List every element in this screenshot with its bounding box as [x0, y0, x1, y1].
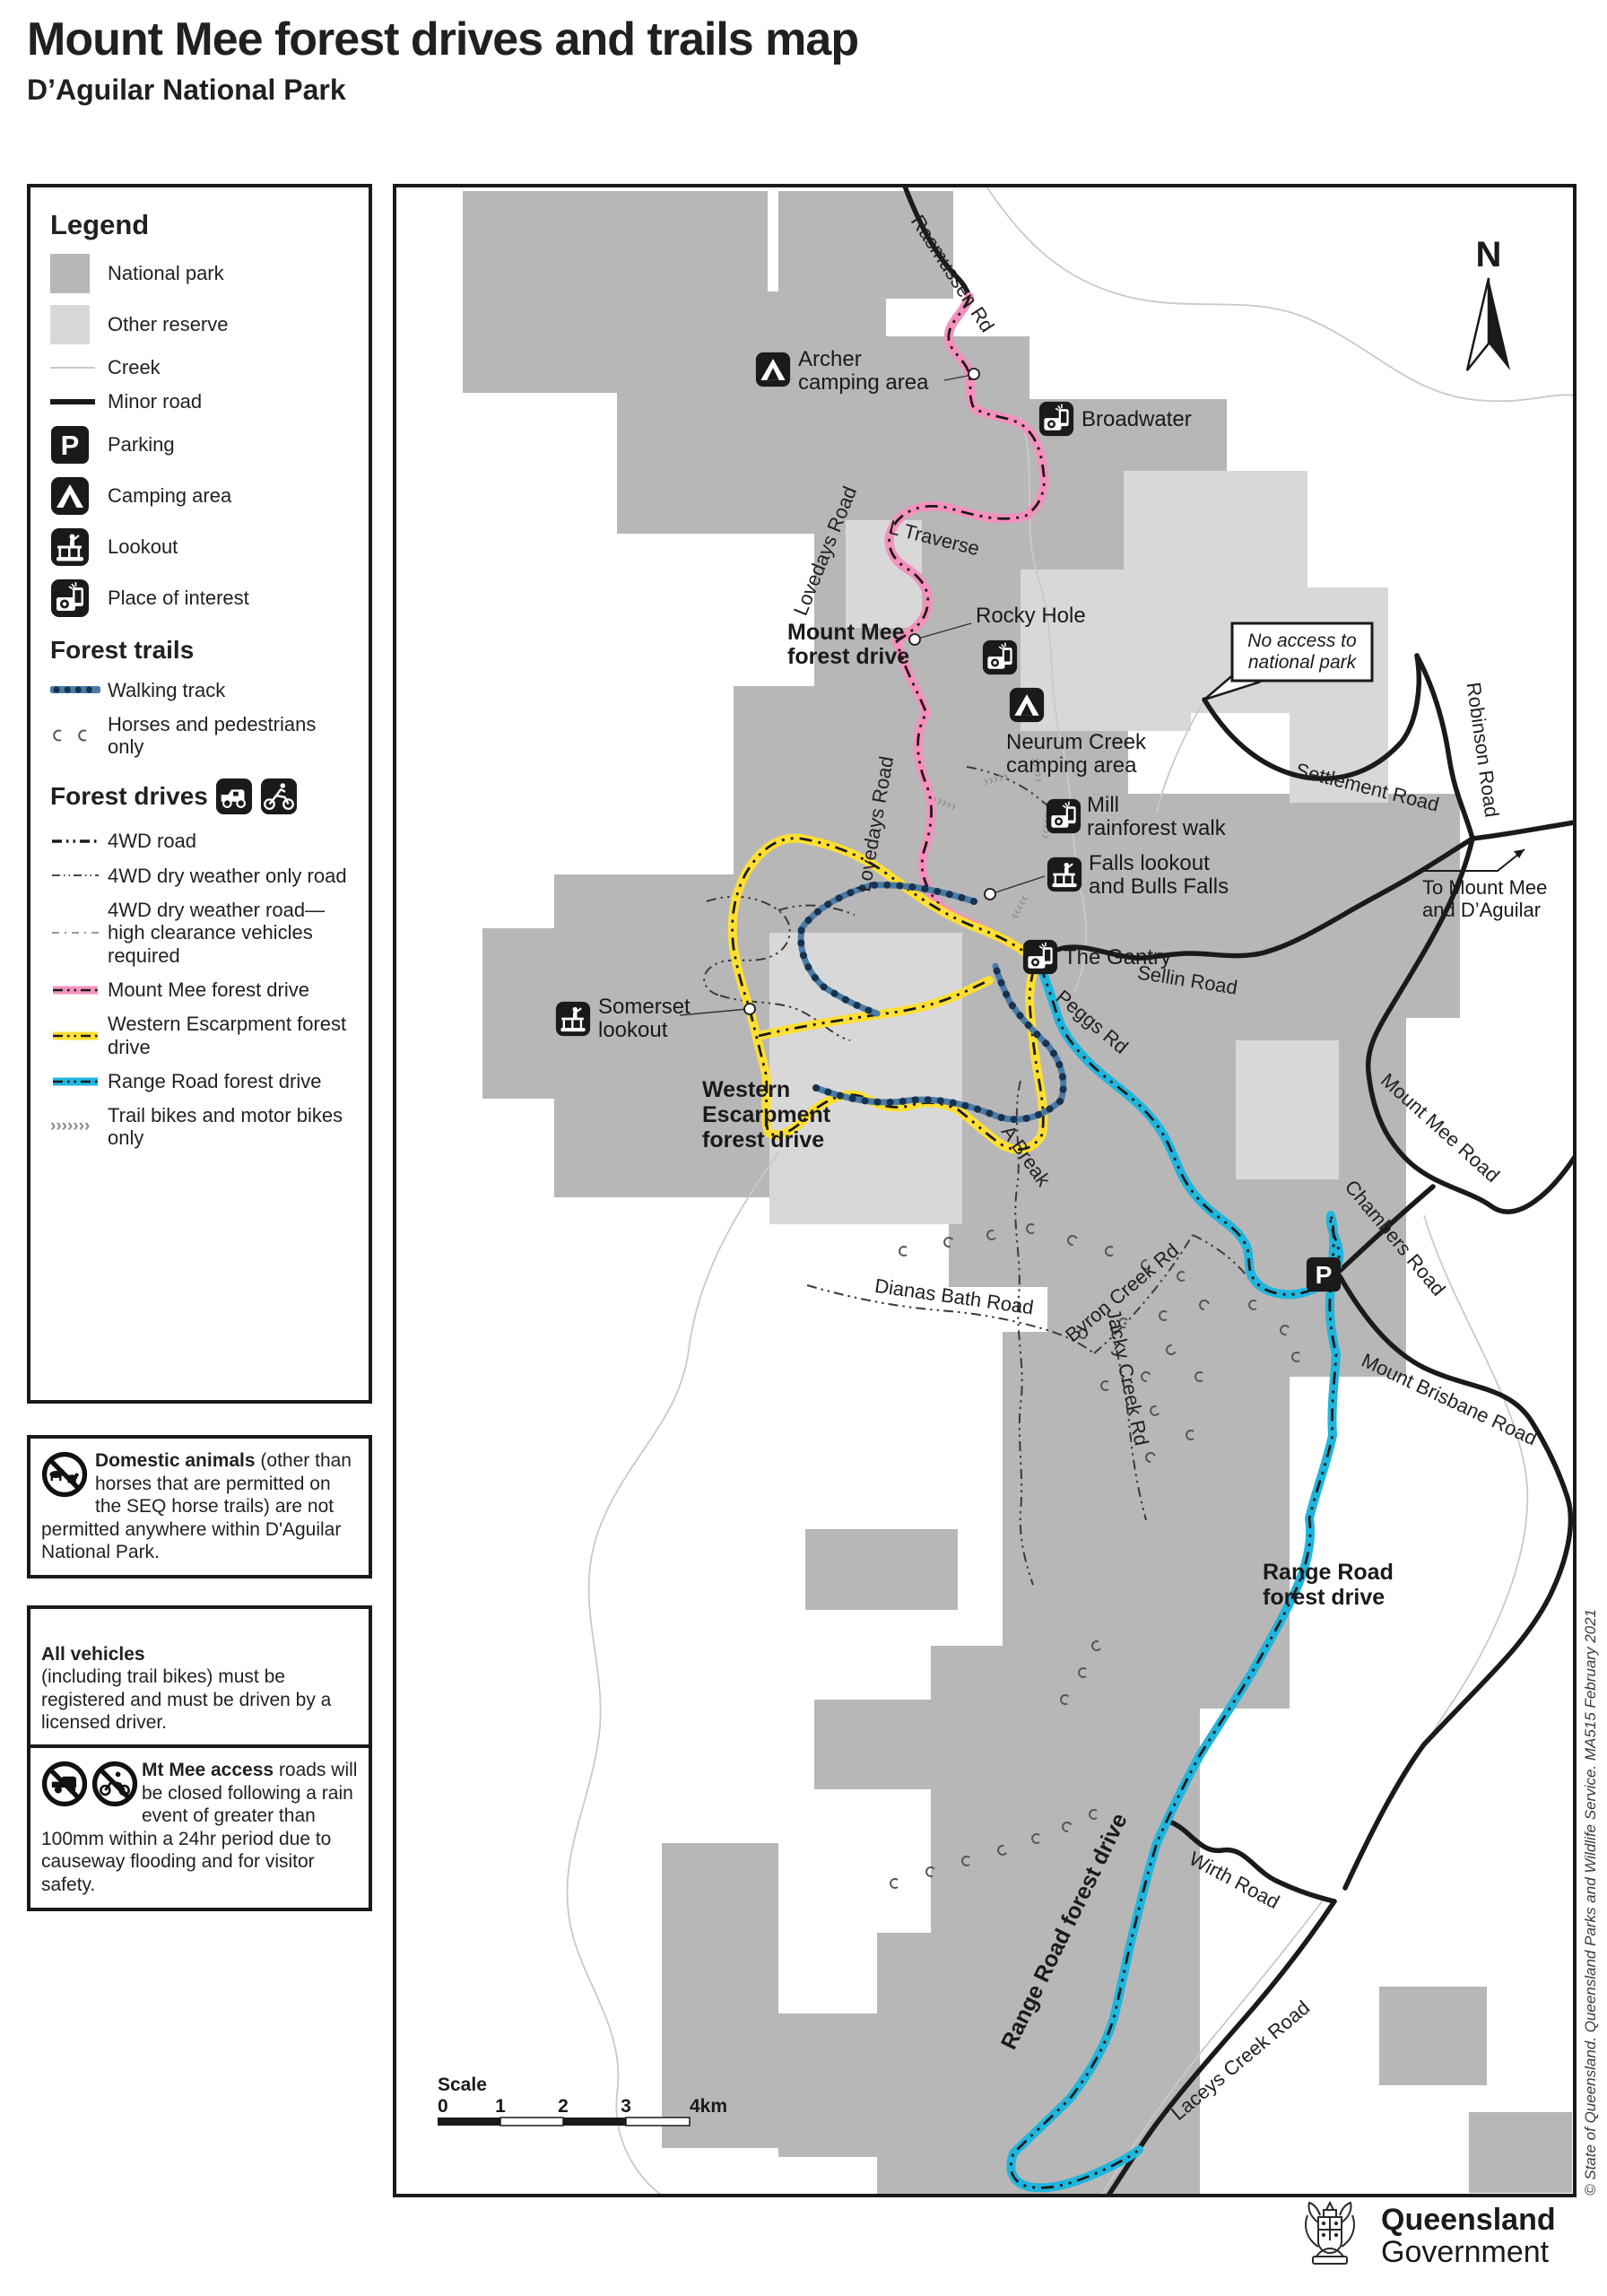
motorbike-icon — [260, 778, 298, 815]
place-of-interest-icon — [50, 578, 108, 618]
label-somerset-1: Somerset — [598, 995, 691, 1019]
lookout-icon — [50, 527, 108, 567]
no-access-line2: national park — [1248, 652, 1358, 673]
range-road-swatch — [50, 1075, 108, 1088]
gantry-poi-icon — [1023, 940, 1057, 974]
legend-item-range-road-drive: Range Road forest drive — [50, 1070, 356, 1092]
western-escarpment-swatch — [50, 1030, 108, 1042]
legend-heading: Legend — [50, 209, 356, 241]
no-domestic-animals-icon — [41, 1451, 88, 1498]
no-motorbike-icon — [91, 1761, 138, 1807]
scale-tick-3: 3 — [621, 2096, 631, 2117]
legend-item-national-park: National park — [50, 254, 356, 293]
gov-line2: Government — [1381, 2237, 1556, 2269]
no-4wd-icon — [41, 1761, 88, 1807]
label-rocky-hole: Rocky Hole — [976, 604, 1086, 628]
label-archer-2: camping area — [798, 370, 929, 395]
parking-icon — [50, 425, 108, 465]
legend-item-parking: Parking — [50, 425, 356, 465]
forest-drives-heading: Forest drives — [50, 778, 356, 815]
gov-line1: Queensland — [1381, 2205, 1556, 2237]
scale-heading: Scale — [438, 2074, 487, 2095]
label-falls-2: and Bulls Falls — [1089, 874, 1229, 899]
trail-bikes-swatch: ››››››› — [50, 1117, 108, 1136]
national-park-areas — [463, 191, 1572, 2196]
note-domestic-animals: Domestic animals (other than horses that… — [27, 1435, 372, 1578]
horses-pedestrians-swatch — [50, 729, 108, 742]
label-mill-2: rainforest walk — [1087, 816, 1227, 840]
label-gantry: The Gantry — [1064, 945, 1171, 970]
page-title: Mount Mee forest drives and trails map — [27, 13, 858, 66]
copyright-text: © State of Queensland. Queensland Parks … — [1582, 1119, 1600, 2196]
rocky-hole-poi-icon — [983, 640, 1017, 674]
label-archer-1: Archer — [798, 347, 862, 371]
label-wirth: Wirth Road — [1186, 1848, 1283, 1914]
legend-item-creek: Creek — [50, 356, 356, 378]
4wd-dry-high-swatch — [50, 926, 108, 939]
legend-item-trail-bikes: ››››››› Trail bikes and motor bikes only — [50, 1104, 356, 1150]
label-neurum-2: camping area — [1006, 753, 1137, 778]
mount-mee-drive-swatch — [50, 984, 108, 996]
to-mount-mee-line2: and D’Aguilar — [1422, 899, 1541, 921]
label-robinson: Robinson Road — [1462, 681, 1503, 819]
minor-road-swatch — [50, 399, 108, 404]
note-road-closure: Mt Mee access roads will be closed follo… — [27, 1744, 372, 1911]
legend-item-western-escarpment-drive: Western Escarpment forest drive — [50, 1013, 356, 1058]
label-broadwater: Broadwater — [1081, 407, 1192, 431]
other-reserve-swatch — [50, 305, 108, 344]
forest-trails-heading: Forest trails — [50, 636, 356, 665]
4wd-icon — [215, 778, 253, 815]
archer-camping-icon — [756, 352, 790, 387]
queensland-government-logo: Queensland Government — [1291, 2190, 1587, 2283]
scale-tick-0: 0 — [438, 2096, 448, 2117]
legend-item-walking-track: Walking track — [50, 679, 356, 701]
somerset-lookout-icon — [556, 1002, 590, 1036]
scale-tick-1: 1 — [495, 2096, 506, 2117]
4wd-road-swatch — [50, 835, 108, 848]
north-arrow: N — [1467, 235, 1510, 370]
label-range-1: Range Road — [1263, 1560, 1394, 1585]
map-panel: ››››› ››››› ››››› ››››› ››››› ››››› — [393, 184, 1577, 2197]
legend-item-minor-road: Minor road — [50, 390, 356, 413]
label-somerset-2: lookout — [598, 1018, 668, 1042]
to-mount-mee-line1: To Mount Mee — [1422, 876, 1547, 899]
broadwater-poi-icon — [1039, 402, 1073, 436]
neurum-camping-icon — [1010, 688, 1044, 722]
falls-lookout-icon — [1047, 857, 1081, 891]
no-access-line1: No access to — [1247, 631, 1357, 651]
label-neurum-1: Neurum Creek — [1006, 730, 1147, 754]
legend-item-camping: Camping area — [50, 476, 356, 516]
label-western-3: forest drive — [702, 1127, 824, 1152]
scale-tick-2: 2 — [558, 2096, 569, 2117]
road-east — [1472, 822, 1575, 839]
label-mount-mee-drive-2: forest drive — [787, 644, 909, 669]
legend-panel: Legend National park Other reserve Creek… — [27, 184, 372, 1404]
legend-item-horses-pedestrians: Horses and pedestrians only — [50, 713, 356, 759]
national-park-swatch — [50, 254, 108, 293]
page-subtitle: D’Aguilar National Park — [27, 74, 346, 107]
legend-item-lookout: Lookout — [50, 527, 356, 567]
scale-tick-4: 4km — [690, 2096, 727, 2117]
walking-track-swatch — [50, 683, 108, 696]
4wd-dry-swatch — [50, 869, 108, 882]
north-label: N — [1476, 235, 1502, 274]
camping-icon — [50, 476, 108, 516]
legend-item-place-of-interest: Place of interest — [50, 578, 356, 618]
label-range-2: forest drive — [1263, 1585, 1385, 1610]
coat-of-arms-icon — [1291, 2190, 1368, 2283]
label-western-2: Escarpment — [702, 1102, 831, 1127]
legend-item-other-reserve: Other reserve — [50, 305, 356, 344]
label-western-1: Western — [702, 1077, 790, 1102]
label-falls-1: Falls lookout — [1089, 851, 1210, 875]
parking-icon-map — [1307, 1257, 1341, 1291]
legend-item-4wd-dry-high: 4WD dry weather road—high clearance vehi… — [50, 899, 356, 967]
legend-item-mount-mee-drive: Mount Mee forest drive — [50, 978, 356, 1001]
legend-item-4wd-dry: 4WD dry weather only road — [50, 865, 356, 887]
legend-item-4wd-road: 4WD road — [50, 830, 356, 852]
label-mill-1: Mill — [1087, 793, 1119, 817]
label-mount-mee-drive-1: Mount Mee — [787, 620, 905, 645]
creek-swatch — [50, 367, 108, 369]
map-svg: ››››› ››››› ››››› ››››› ››››› ››››› — [393, 184, 1577, 2197]
mill-poi-icon — [1047, 799, 1081, 833]
